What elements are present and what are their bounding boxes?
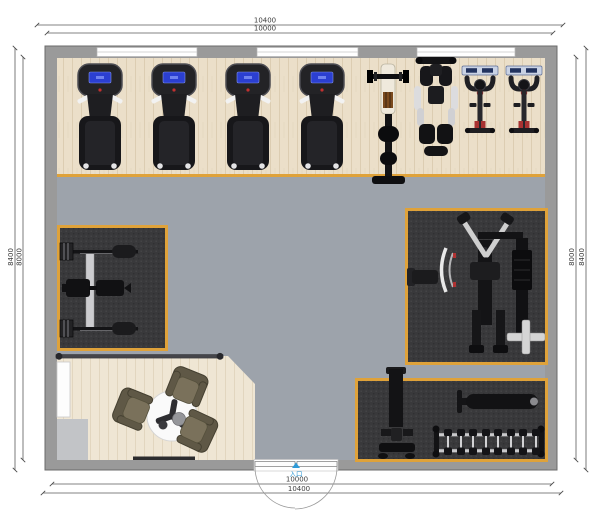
partition-post-right <box>217 353 224 360</box>
dim-label-bottom-outer: 10400 <box>288 485 310 493</box>
dim-label-left-outer: 8400 <box>7 248 15 266</box>
dim-label-top-inner: 10000 <box>254 25 276 33</box>
door-mat <box>133 457 195 461</box>
door-leaf-left <box>255 462 295 467</box>
reception-counter <box>57 362 70 417</box>
floor-mat-gray <box>57 419 88 460</box>
door-leaf-right <box>297 462 337 467</box>
dim-label-top-outer: 10400 <box>254 17 276 25</box>
table-item-dark <box>159 421 168 430</box>
cardio-floor-edge <box>57 174 545 177</box>
partition-post-left <box>56 353 63 360</box>
gym-floor-plan: 10400 10000 10000 10400 8400 8000 8000 8… <box>0 0 600 526</box>
dim-label-left-inner: 8000 <box>16 248 24 266</box>
partition-wall <box>56 355 223 359</box>
dim-label-right-inner: 8000 <box>568 248 576 266</box>
dim-label-right-outer: 8400 <box>578 248 586 266</box>
entrance-label: 入口 <box>290 470 303 478</box>
